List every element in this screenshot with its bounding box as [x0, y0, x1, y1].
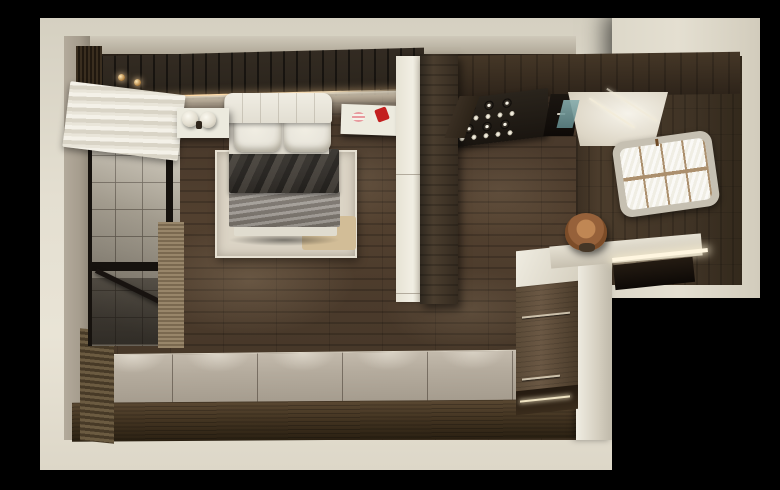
cabinet-handle — [522, 375, 560, 381]
throw-blanket — [229, 191, 340, 227]
sphere-lamp-icon — [200, 112, 216, 128]
striped-decor-item — [352, 112, 365, 122]
duvet — [229, 149, 339, 193]
pendant-light-icon — [134, 79, 141, 86]
upper-cabinets — [424, 52, 740, 98]
wood-louver-panel — [158, 222, 184, 348]
render-canvas — [0, 0, 780, 490]
grid-window — [611, 129, 721, 218]
window-latch — [655, 139, 659, 146]
notch-wall — [576, 242, 612, 440]
headboard — [224, 93, 332, 123]
window-frame-left — [88, 128, 92, 346]
closet-front — [396, 56, 420, 302]
cabinet-handle — [522, 312, 570, 319]
lower-wall-wood-band — [72, 399, 576, 442]
floating-shelf — [340, 104, 403, 136]
lamp-base — [196, 121, 202, 129]
island-cabinet-front — [516, 281, 578, 398]
chair-back-opening — [579, 243, 595, 252]
pendant-light-icon — [118, 74, 125, 81]
roman-blind — [62, 81, 185, 161]
window-pane — [619, 137, 713, 210]
wardrobe-partition — [420, 54, 458, 304]
platform-floor — [88, 350, 518, 405]
